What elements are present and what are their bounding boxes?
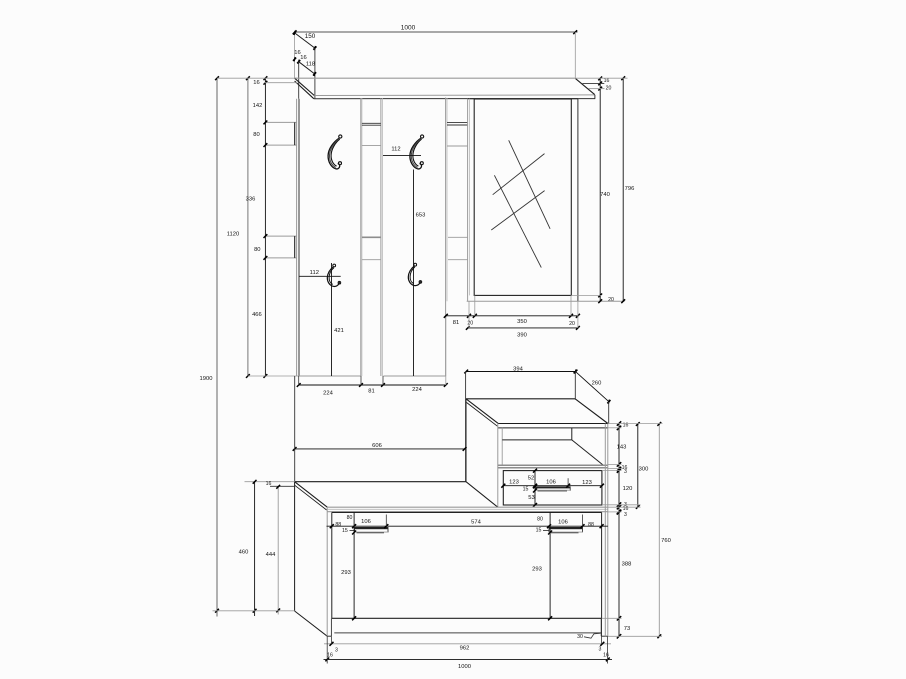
svg-text:52: 52: [528, 475, 534, 481]
svg-text:390: 390: [517, 333, 527, 339]
svg-text:293: 293: [532, 567, 542, 573]
svg-text:1000: 1000: [401, 24, 416, 31]
svg-text:653: 653: [416, 213, 426, 219]
svg-text:143: 143: [617, 445, 627, 451]
svg-text:30: 30: [577, 634, 583, 640]
svg-text:962: 962: [460, 646, 470, 652]
svg-text:16: 16: [327, 652, 333, 658]
svg-text:606: 606: [372, 443, 382, 449]
svg-text:73: 73: [624, 626, 630, 632]
svg-text:123: 123: [582, 480, 592, 486]
svg-text:20: 20: [606, 85, 612, 91]
svg-text:123: 123: [509, 479, 519, 485]
svg-text:142: 142: [253, 103, 263, 109]
svg-text:740: 740: [600, 192, 610, 198]
svg-text:81: 81: [368, 389, 374, 395]
svg-text:16: 16: [604, 78, 610, 84]
svg-text:224: 224: [412, 387, 422, 393]
svg-text:80: 80: [347, 515, 353, 521]
svg-text:15: 15: [523, 487, 529, 493]
svg-text:16: 16: [300, 55, 306, 61]
svg-text:350: 350: [517, 319, 527, 325]
svg-text:16: 16: [253, 80, 259, 86]
svg-text:80: 80: [254, 247, 260, 253]
svg-text:574: 574: [471, 519, 481, 525]
svg-text:224: 224: [323, 391, 333, 397]
svg-text:20: 20: [569, 321, 575, 327]
svg-text:80: 80: [253, 132, 259, 138]
svg-text:15: 15: [536, 528, 542, 534]
svg-text:336: 336: [246, 196, 256, 202]
svg-text:16: 16: [603, 652, 609, 658]
svg-text:760: 760: [661, 538, 671, 544]
svg-text:15: 15: [342, 528, 348, 534]
svg-text:3: 3: [624, 512, 627, 518]
svg-text:300: 300: [639, 467, 649, 473]
svg-text:796: 796: [625, 186, 635, 192]
svg-text:53: 53: [528, 495, 534, 501]
svg-text:466: 466: [252, 312, 262, 318]
svg-text:16: 16: [266, 481, 272, 487]
svg-text:80: 80: [537, 517, 543, 523]
svg-text:388: 388: [622, 561, 632, 567]
svg-text:20: 20: [608, 297, 614, 303]
svg-text:1900: 1900: [200, 376, 213, 382]
svg-text:3: 3: [599, 647, 602, 653]
svg-text:20: 20: [467, 320, 473, 326]
svg-text:106: 106: [558, 519, 568, 525]
svg-text:394: 394: [513, 366, 523, 372]
svg-text:81: 81: [453, 320, 459, 326]
svg-text:118: 118: [306, 62, 315, 68]
svg-text:112: 112: [391, 147, 400, 153]
svg-text:260: 260: [592, 381, 602, 387]
svg-text:421: 421: [334, 328, 344, 334]
svg-text:444: 444: [266, 552, 276, 558]
svg-text:3: 3: [624, 469, 627, 475]
svg-text:3: 3: [335, 647, 338, 653]
svg-text:106: 106: [361, 519, 371, 525]
svg-text:1120: 1120: [227, 232, 239, 238]
svg-text:150: 150: [305, 33, 316, 40]
svg-text:120: 120: [623, 486, 633, 492]
svg-text:88: 88: [588, 522, 594, 528]
svg-text:1000: 1000: [458, 664, 471, 670]
svg-text:112: 112: [310, 270, 319, 276]
svg-text:460: 460: [239, 550, 249, 556]
svg-text:106: 106: [546, 479, 556, 485]
svg-text:293: 293: [341, 570, 351, 576]
svg-text:88: 88: [335, 522, 341, 528]
